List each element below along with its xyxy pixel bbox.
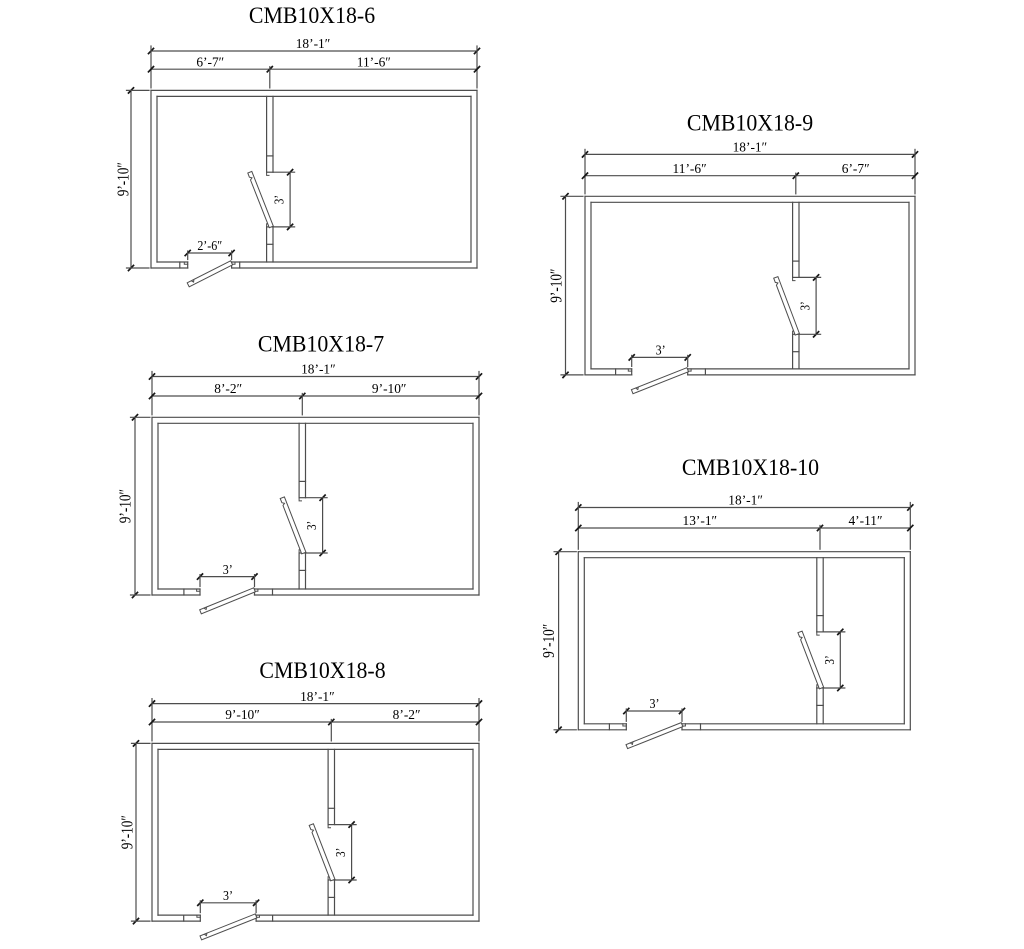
svg-text:CMB10X18-7: CMB10X18-7 [258, 331, 384, 357]
svg-text:18’-1″: 18’-1″ [728, 492, 763, 507]
svg-text:3’: 3’ [650, 695, 660, 711]
svg-text:3’: 3’ [271, 195, 286, 204]
svg-text:3’: 3’ [223, 887, 233, 903]
svg-text:9’-10″: 9’-10″ [116, 489, 135, 523]
svg-text:18’-1″: 18’-1″ [300, 688, 335, 703]
svg-text:9’-10″: 9’-10″ [539, 624, 558, 658]
svg-text:CMB10X18-6: CMB10X18-6 [249, 2, 375, 28]
svg-text:CMB10X18-9: CMB10X18-9 [687, 110, 813, 136]
svg-text:3’: 3’ [333, 848, 348, 857]
svg-text:13’-1″: 13’-1″ [683, 513, 718, 528]
svg-text:18’-1″: 18’-1″ [301, 361, 336, 376]
svg-text:18’-1″: 18’-1″ [733, 139, 768, 154]
svg-text:3’: 3’ [656, 342, 666, 358]
svg-text:9’-10″: 9’-10″ [114, 162, 133, 196]
svg-text:2’-6″: 2’-6″ [197, 237, 222, 253]
svg-text:6’-7″: 6’-7″ [842, 161, 870, 176]
svg-text:8’-2″: 8’-2″ [393, 707, 421, 722]
svg-text:3’: 3’ [797, 301, 812, 310]
svg-text:3’: 3’ [304, 521, 319, 530]
svg-text:6’-7″: 6’-7″ [196, 54, 224, 69]
svg-text:4’-11″: 4’-11″ [848, 513, 882, 528]
svg-text:9’-10″: 9’-10″ [547, 268, 566, 302]
svg-text:8’-2″: 8’-2″ [214, 381, 242, 396]
svg-text:9’-10″: 9’-10″ [372, 381, 407, 396]
svg-text:CMB10X18-10: CMB10X18-10 [682, 454, 819, 480]
svg-text:18’-1″: 18’-1″ [296, 36, 331, 51]
svg-text:9’-10″: 9’-10″ [118, 815, 137, 849]
svg-text:CMB10X18-8: CMB10X18-8 [259, 657, 385, 683]
svg-text:11’-6″: 11’-6″ [673, 161, 707, 176]
svg-text:11’-6″: 11’-6″ [357, 54, 391, 69]
svg-text:9’-10″: 9’-10″ [225, 707, 260, 722]
svg-text:3’: 3’ [223, 561, 233, 577]
svg-text:3’: 3’ [822, 655, 837, 664]
